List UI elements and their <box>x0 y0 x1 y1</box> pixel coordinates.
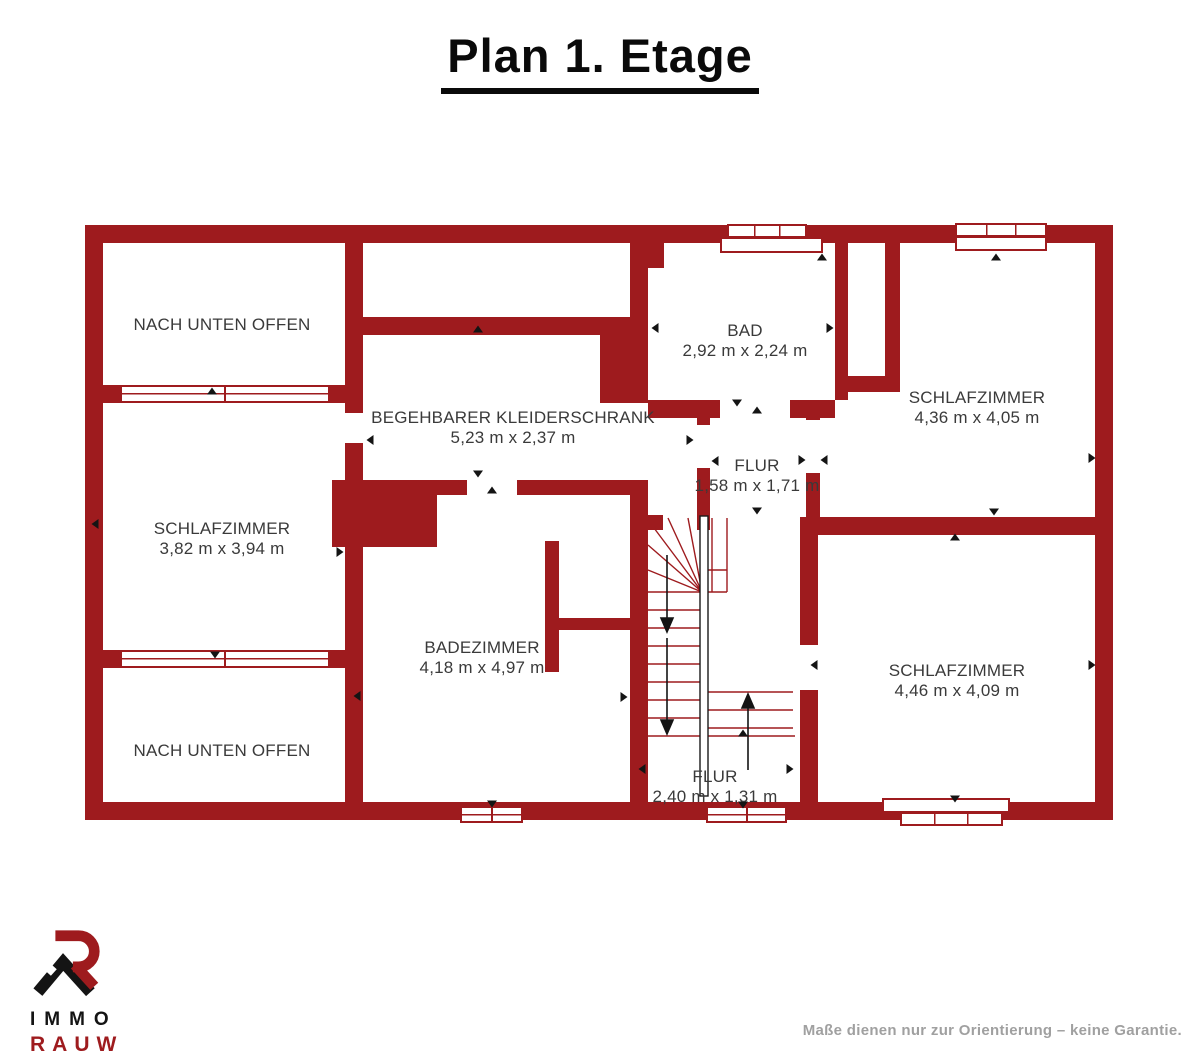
room-name: FLUR <box>687 456 827 476</box>
wall <box>885 243 900 390</box>
room-dims: 3,82 m x 3,94 m <box>97 539 347 559</box>
room-label-schlafzimmer-links: SCHLAFZIMMER 3,82 m x 3,94 m <box>97 519 347 559</box>
room-dims: 4,46 m x 4,09 m <box>837 681 1077 701</box>
wall <box>800 517 1113 535</box>
wall <box>517 480 630 495</box>
room-name: NACH UNTEN OFFEN <box>97 741 347 761</box>
room-label-nach-unten-offen-top: NACH UNTEN OFFEN <box>97 315 347 335</box>
disclaimer-text: Maße dienen nur zur Orientierung – keine… <box>803 1022 1182 1039</box>
room-dims: 2,40 m x 1,31 m <box>640 787 790 807</box>
dimension-arrow <box>991 254 1001 261</box>
chimney-block <box>332 480 437 547</box>
wall <box>697 403 710 425</box>
dimension-arrow <box>487 801 497 808</box>
room-name: BAD <box>645 321 845 341</box>
dimension-arrow <box>473 471 483 478</box>
window-sill <box>882 798 1010 813</box>
dimension-arrow <box>1089 660 1096 670</box>
wall <box>806 403 820 420</box>
dimension-arrow <box>752 407 762 414</box>
dimension-arrow <box>1089 453 1096 463</box>
room-name: SCHLAFZIMMER <box>97 519 347 539</box>
dimension-arrow <box>487 487 497 494</box>
dimension-arrow <box>621 692 628 702</box>
room-label-schlafzimmer-unten-rechts: SCHLAFZIMMER 4,46 m x 4,09 m <box>837 661 1077 701</box>
dimension-arrow <box>738 730 748 737</box>
window <box>120 385 330 403</box>
dimension-arrow <box>950 534 960 541</box>
dimension-arrow <box>210 652 220 659</box>
dimension-arrow <box>473 326 483 333</box>
room-dims: 5,23 m x 2,37 m <box>353 428 673 448</box>
company-logo: IMMO RAUW <box>30 928 180 1057</box>
room-label-flur-unten: FLUR 2,40 m x 1,31 m <box>640 767 790 807</box>
window-sill <box>955 236 1047 251</box>
brand-rauw: RAUW <box>30 1033 180 1057</box>
dimension-arrow <box>989 509 999 516</box>
room-name: SCHLAFZIMMER <box>837 661 1077 681</box>
window <box>460 806 523 823</box>
dimension-arrow <box>752 508 762 515</box>
brand-immo: IMMO <box>30 1009 180 1031</box>
dimension-arrow <box>687 435 694 445</box>
room-name: FLUR <box>640 767 790 787</box>
dimension-arrow <box>207 388 217 395</box>
room-dims: 4,18 m x 4,97 m <box>362 658 602 678</box>
floor-plan: NACH UNTEN OFFEN SCHLAFZIMMER 3,82 m x 3… <box>0 0 1200 1050</box>
room-name: BEGEHBARER KLEIDERSCHRANK <box>353 408 673 428</box>
dimension-arrow <box>817 254 827 261</box>
room-dims: 2,92 m x 2,24 m <box>645 341 845 361</box>
logo-mark-icon <box>30 928 108 998</box>
room-name: NACH UNTEN OFFEN <box>97 315 347 335</box>
wall <box>648 243 664 268</box>
dormer-window <box>955 223 1047 237</box>
room-label-badezimmer: BADEZIMMER 4,18 m x 4,97 m <box>362 638 602 678</box>
room-label-nach-unten-offen-unten: NACH UNTEN OFFEN <box>97 741 347 761</box>
window <box>120 650 330 668</box>
room-name: BADEZIMMER <box>362 638 602 658</box>
room-label-flur-mitte: FLUR 1,58 m x 1,71 m <box>687 456 827 496</box>
dimension-arrow <box>732 400 742 407</box>
dimension-arrow <box>950 796 960 803</box>
room-dims: 1,58 m x 1,71 m <box>687 476 827 496</box>
dimension-arrow <box>354 691 361 701</box>
room-label-schlafzimmer-oben-rechts: SCHLAFZIMMER 4,36 m x 4,05 m <box>858 388 1096 428</box>
room-label-bad: BAD 2,92 m x 2,24 m <box>645 321 845 361</box>
shower-partition <box>559 618 630 630</box>
dimension-arrow <box>811 660 818 670</box>
room-name: SCHLAFZIMMER <box>858 388 1096 408</box>
wall <box>345 317 648 335</box>
window-sill <box>720 237 823 253</box>
room-dims: 4,36 m x 4,05 m <box>858 408 1096 428</box>
room-label-kleiderschrank: BEGEHBARER KLEIDERSCHRANK 5,23 m x 2,37 … <box>353 408 673 448</box>
dormer-window <box>900 812 1003 826</box>
roof-window <box>727 224 807 238</box>
